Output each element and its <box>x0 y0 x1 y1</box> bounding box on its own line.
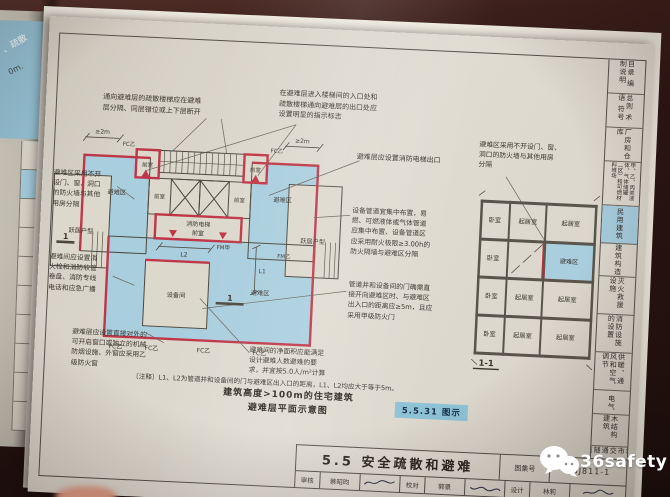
svg-text:卧室: 卧室 <box>489 216 502 225</box>
section-mark: 1-1 <box>478 359 494 370</box>
sidebar-tab-label: 厂房和仓库 <box>615 128 633 162</box>
atlas-page: 避难区 避难区 避难区 跃居户型 跃居户型 设备间 前室 前室 前室 前室 消防… <box>28 16 656 497</box>
page-frame: 避难区 避难区 避难区 跃居户型 跃居户型 设备间 前室 前室 前室 前室 消防… <box>38 32 646 497</box>
equipment-label: 设备间 <box>167 291 186 300</box>
book-photo: 、疏散 0m. <box>0 0 670 497</box>
dim-2m: ≥2m <box>95 128 110 136</box>
sidebar-tab-construction: 建筑构造 <box>599 243 637 279</box>
sidebar-tab-general: 总则 术语 符号 <box>606 93 644 129</box>
fire-elevator-front-label: 前室 <box>192 229 204 238</box>
sidebar-tab-tanks: 甲、乙、丙类液体、气体储罐（区）和可燃材料堆场 <box>603 161 641 206</box>
sidebar-tab-civil-building: 民用建筑 <box>601 205 639 245</box>
fm-door-tag: FM乙 <box>277 253 291 261</box>
sidebar-tab-label: 建筑构造 <box>613 244 623 276</box>
wechat-icon <box>538 444 580 480</box>
sidebar-tab-label: 甲、乙、丙类液体、气体储罐（区）和可燃材料堆场 <box>608 162 635 206</box>
section-refuge-label: 避难区 <box>560 257 579 266</box>
annotation-firewall-left: 避难区采用不开 设门、窗、洞口 的防火墙与其他 用房分隔 <box>52 167 118 211</box>
review-label: 审核 <box>295 471 320 488</box>
svg-text:卧室: 卧室 <box>487 254 500 263</box>
signature-scribble <box>467 481 504 495</box>
svg-text:起居室: 起居室 <box>558 295 577 304</box>
svg-text:起居室: 起居室 <box>561 219 580 228</box>
watermark: 36safety <box>538 444 667 480</box>
drawing-area: 避难区 避难区 避难区 跃居户型 跃居户型 设备间 前室 前室 前室 前室 消防… <box>41 33 609 458</box>
sidebar-tab-label: 消防设施的设置 <box>606 315 624 353</box>
sidebar-tab-electrical: 电气 <box>593 390 630 416</box>
sidebar-tab-fire-facilities: 消防设施的设置 <box>596 314 634 354</box>
review-signature <box>360 474 401 492</box>
dim-l2: L2 <box>180 251 188 258</box>
signature-scribble <box>362 476 399 490</box>
figure-number-badge: 5.5.31 图示 <box>394 402 468 421</box>
svg-text:卧室: 卧室 <box>483 330 496 339</box>
refuge-label: 避难区 <box>251 289 270 298</box>
section-cut-number: 1 <box>227 294 233 303</box>
signature-scribble <box>579 486 616 497</box>
sidebar-tab-rescue: 灭火救援设施 <box>598 277 636 317</box>
sidebar-tab-hvac: 供暖、通风和空气调节 <box>594 352 632 392</box>
sidebar-tab-contents: 目录 编制说明 <box>608 59 646 95</box>
sidebar-tab-label: 灭火救援设施 <box>608 277 626 315</box>
svg-text:起居室: 起居室 <box>556 333 575 342</box>
fc-window-tag: FC乙 <box>270 148 283 156</box>
fire-elevator-front-label: 消防电梯 <box>186 220 210 229</box>
fm-door-tag: FM甲 <box>216 244 230 252</box>
annotation-pipe-door: 管道井和设备间的门确需直 接开向避难区时、与避难区 出入口的距离应≥5m，且应 … <box>347 279 475 326</box>
sidebar-tab-label: 木结构建筑 <box>601 415 619 447</box>
previous-page-text-fragment: 、疏散 <box>0 31 29 56</box>
design-signature <box>570 484 626 497</box>
proofread-name: 郭景 <box>425 477 466 495</box>
annotation-section-firewall: 避难区采用不开设门、窗、 洞口的防火墙与其他用房 分隔 <box>478 139 599 175</box>
proofread-signature <box>465 479 506 497</box>
dim-l1: L1 <box>258 268 266 275</box>
duplex-label: 跃居户型 <box>300 237 325 246</box>
fc-window-tag: FC乙 <box>196 347 210 355</box>
watermark-text: 36safety <box>580 452 667 472</box>
sidebar-tab-timber: 木结构建筑 <box>591 414 628 448</box>
proofread-label: 校对 <box>400 476 425 493</box>
fc-window-tag: FC乙 <box>123 141 136 149</box>
sidebar-tab-label: 目录 编制说明 <box>618 60 636 94</box>
sidebar-tab-factory: 厂房和仓库 <box>605 127 643 163</box>
design-name: 林莉 <box>530 482 571 497</box>
svg-text:起居室: 起居室 <box>518 217 537 226</box>
dim-2m: ≥2m <box>295 138 310 146</box>
sidebar-tab-label: 总则 术语 符号 <box>616 94 634 128</box>
refuge-label: 避难区 <box>273 196 292 205</box>
duplex-label: 跃居户型 <box>68 226 93 235</box>
previous-page-text-fragment: 0m. <box>7 61 25 76</box>
annotation-window-smoke: 避难层应设置直接对外的 可开启窗口或独立的机械 防烟设施、外窗应采用乙 级防火窗 <box>70 326 196 373</box>
sidebar-tab-label: 供暖、通风和空气调节 <box>600 353 626 391</box>
sidebar-tab-label: 电气 <box>607 394 616 410</box>
svg-text:起居室: 起居室 <box>513 331 532 340</box>
svg-text:起居室: 起居室 <box>515 293 534 302</box>
design-label: 设计 <box>505 481 530 497</box>
sidebar-tab-label: 民用建筑 <box>615 208 625 240</box>
section-cut-number: 1 <box>63 232 69 241</box>
annotation-hydrant: 避难间应设置消 火栓和消防软管 卷盘、消防专线 电话和应急广播 <box>48 251 114 295</box>
annotation-pipes: 设备管道宜集中布置，易 燃、可燃液体或气体管道 应集中布置、设备管道区 应采用耐… <box>350 205 474 262</box>
svg-text:卧室: 卧室 <box>485 292 498 301</box>
review-name: 蔡昭昀 <box>320 472 361 490</box>
